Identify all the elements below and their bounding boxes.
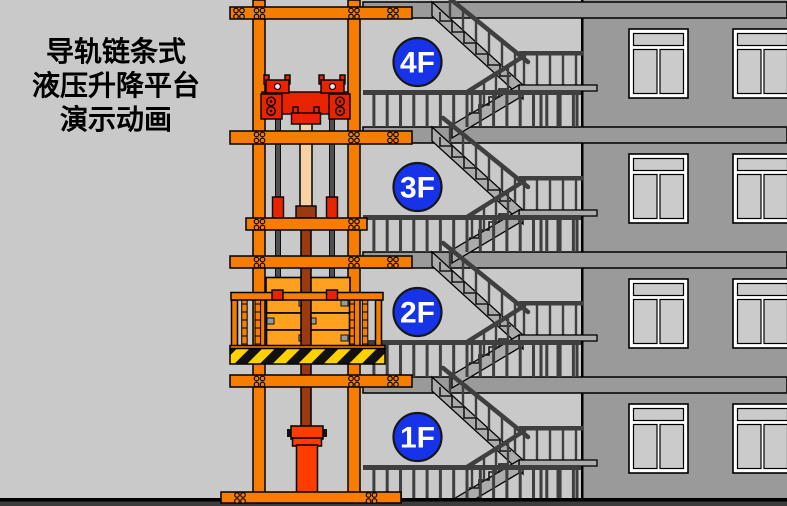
window xyxy=(733,404,787,473)
sprocket-axle-left xyxy=(275,84,281,90)
cylinder-head xyxy=(291,426,323,439)
chain-clip-right xyxy=(327,290,338,300)
title-line-2: 液压升降平台 xyxy=(32,69,200,101)
mast-column-right xyxy=(348,0,360,493)
title-line-3: 演示动画 xyxy=(60,103,172,135)
floor-badge-label: 4F xyxy=(400,47,435,80)
chain-anchor-right xyxy=(327,197,338,218)
title-line-1: 导轨链条式 xyxy=(46,35,186,67)
sprocket-axle-right xyxy=(330,84,336,90)
chain-anchor-left xyxy=(273,197,284,218)
floor-slab xyxy=(363,127,787,143)
window xyxy=(629,279,688,348)
window xyxy=(733,279,787,348)
window xyxy=(629,29,688,98)
floor-badge-3f: 3F xyxy=(394,163,442,211)
platform-end-post-right xyxy=(376,300,382,347)
platform-end-post-left xyxy=(232,300,238,347)
window xyxy=(733,154,787,223)
facade-wall-edge xyxy=(581,0,584,499)
floor-slab xyxy=(363,252,787,268)
window xyxy=(733,29,787,98)
window xyxy=(629,404,688,473)
floor-badge-label: 3F xyxy=(400,172,435,205)
scene: 4F 3F 2F 1F xyxy=(0,0,787,506)
window xyxy=(629,154,688,223)
mast-column-left xyxy=(253,0,265,493)
floor-badge-label: 2F xyxy=(400,297,435,330)
cylinder-rod-lower xyxy=(301,218,311,432)
animation-stage: 4F 3F 2F 1F xyxy=(0,0,787,506)
cylinder-body xyxy=(297,445,318,494)
floor-slab xyxy=(363,377,787,393)
floor-badge-2f: 2F xyxy=(394,288,442,336)
floor-badge-label: 1F xyxy=(400,422,435,455)
platform-top-rail xyxy=(231,293,383,301)
floor-slab xyxy=(363,2,787,18)
floor-badge-1f: 1F xyxy=(394,413,442,461)
rod-collar xyxy=(296,206,316,219)
chain-clip-left xyxy=(272,290,283,300)
floor-badge-4f: 4F xyxy=(394,38,442,86)
platform-hazard-strip xyxy=(230,349,385,365)
